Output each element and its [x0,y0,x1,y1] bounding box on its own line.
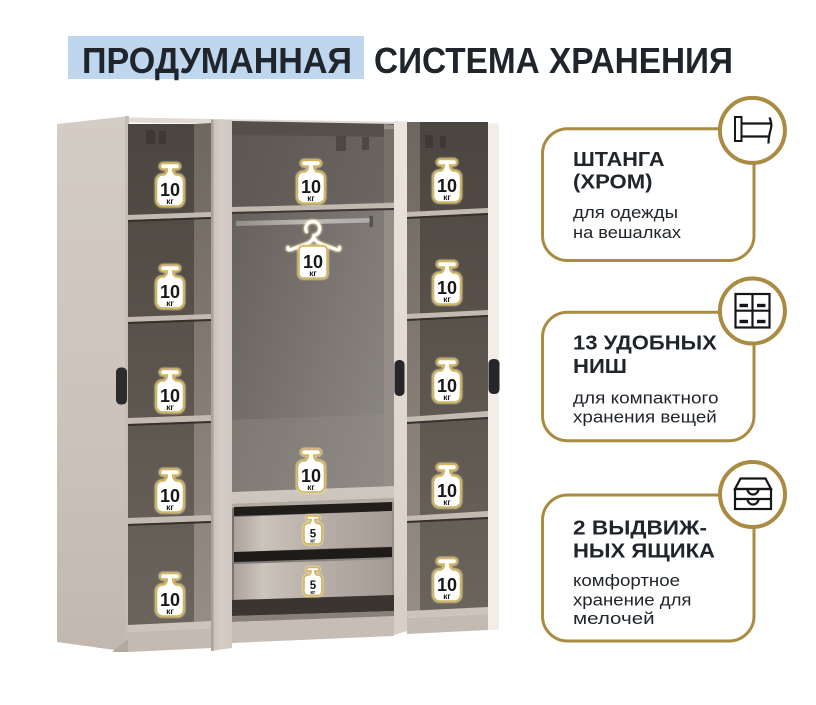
svg-text:ПРОДУМАННАЯ: ПРОДУМАННАЯ [82,40,352,81]
svg-text:хранения вещей: хранения вещей [573,408,717,427]
svg-text:13 УДОБНЫХ: 13 УДОБНЫХ [573,332,717,355]
svg-text:на вешалках: на вешалках [573,223,682,242]
svg-text:ШТАНГА: ШТАНГА [573,148,665,171]
svg-text:для компактного: для компактного [573,389,719,408]
svg-text:комфортное: комфортное [573,571,680,590]
svg-text:для одежды: для одежды [573,203,678,222]
svg-text:кг: кг [309,269,317,278]
svg-text:(ХРОМ): (ХРОМ) [573,171,653,194]
svg-text:мелочей: мелочей [573,609,655,628]
svg-text:2 ВЫДВИЖ-: 2 ВЫДВИЖ- [573,517,707,540]
svg-text:НИШ: НИШ [573,355,627,378]
svg-text:СИСТЕМА ХРАНЕНИЯ: СИСТЕМА ХРАНЕНИЯ [374,40,733,81]
svg-text:НЫХ ЯЩИКА: НЫХ ЯЩИКА [573,540,715,563]
svg-text:хранение для: хранение для [573,591,692,610]
